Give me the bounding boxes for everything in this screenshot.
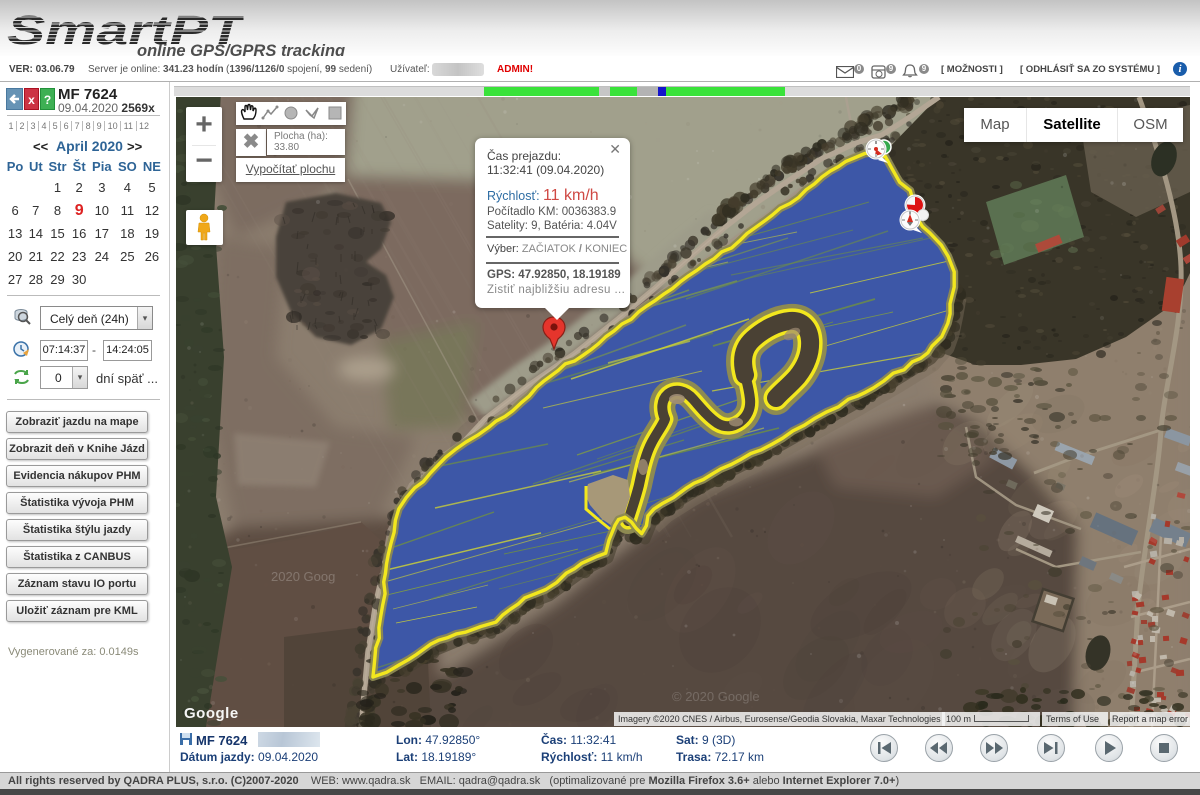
svg-text:2020 Goog: 2020 Goog [271,569,335,584]
svg-text:Google: Google [184,705,239,722]
svg-text:© 2020 Google: © 2020 Google [672,689,760,704]
